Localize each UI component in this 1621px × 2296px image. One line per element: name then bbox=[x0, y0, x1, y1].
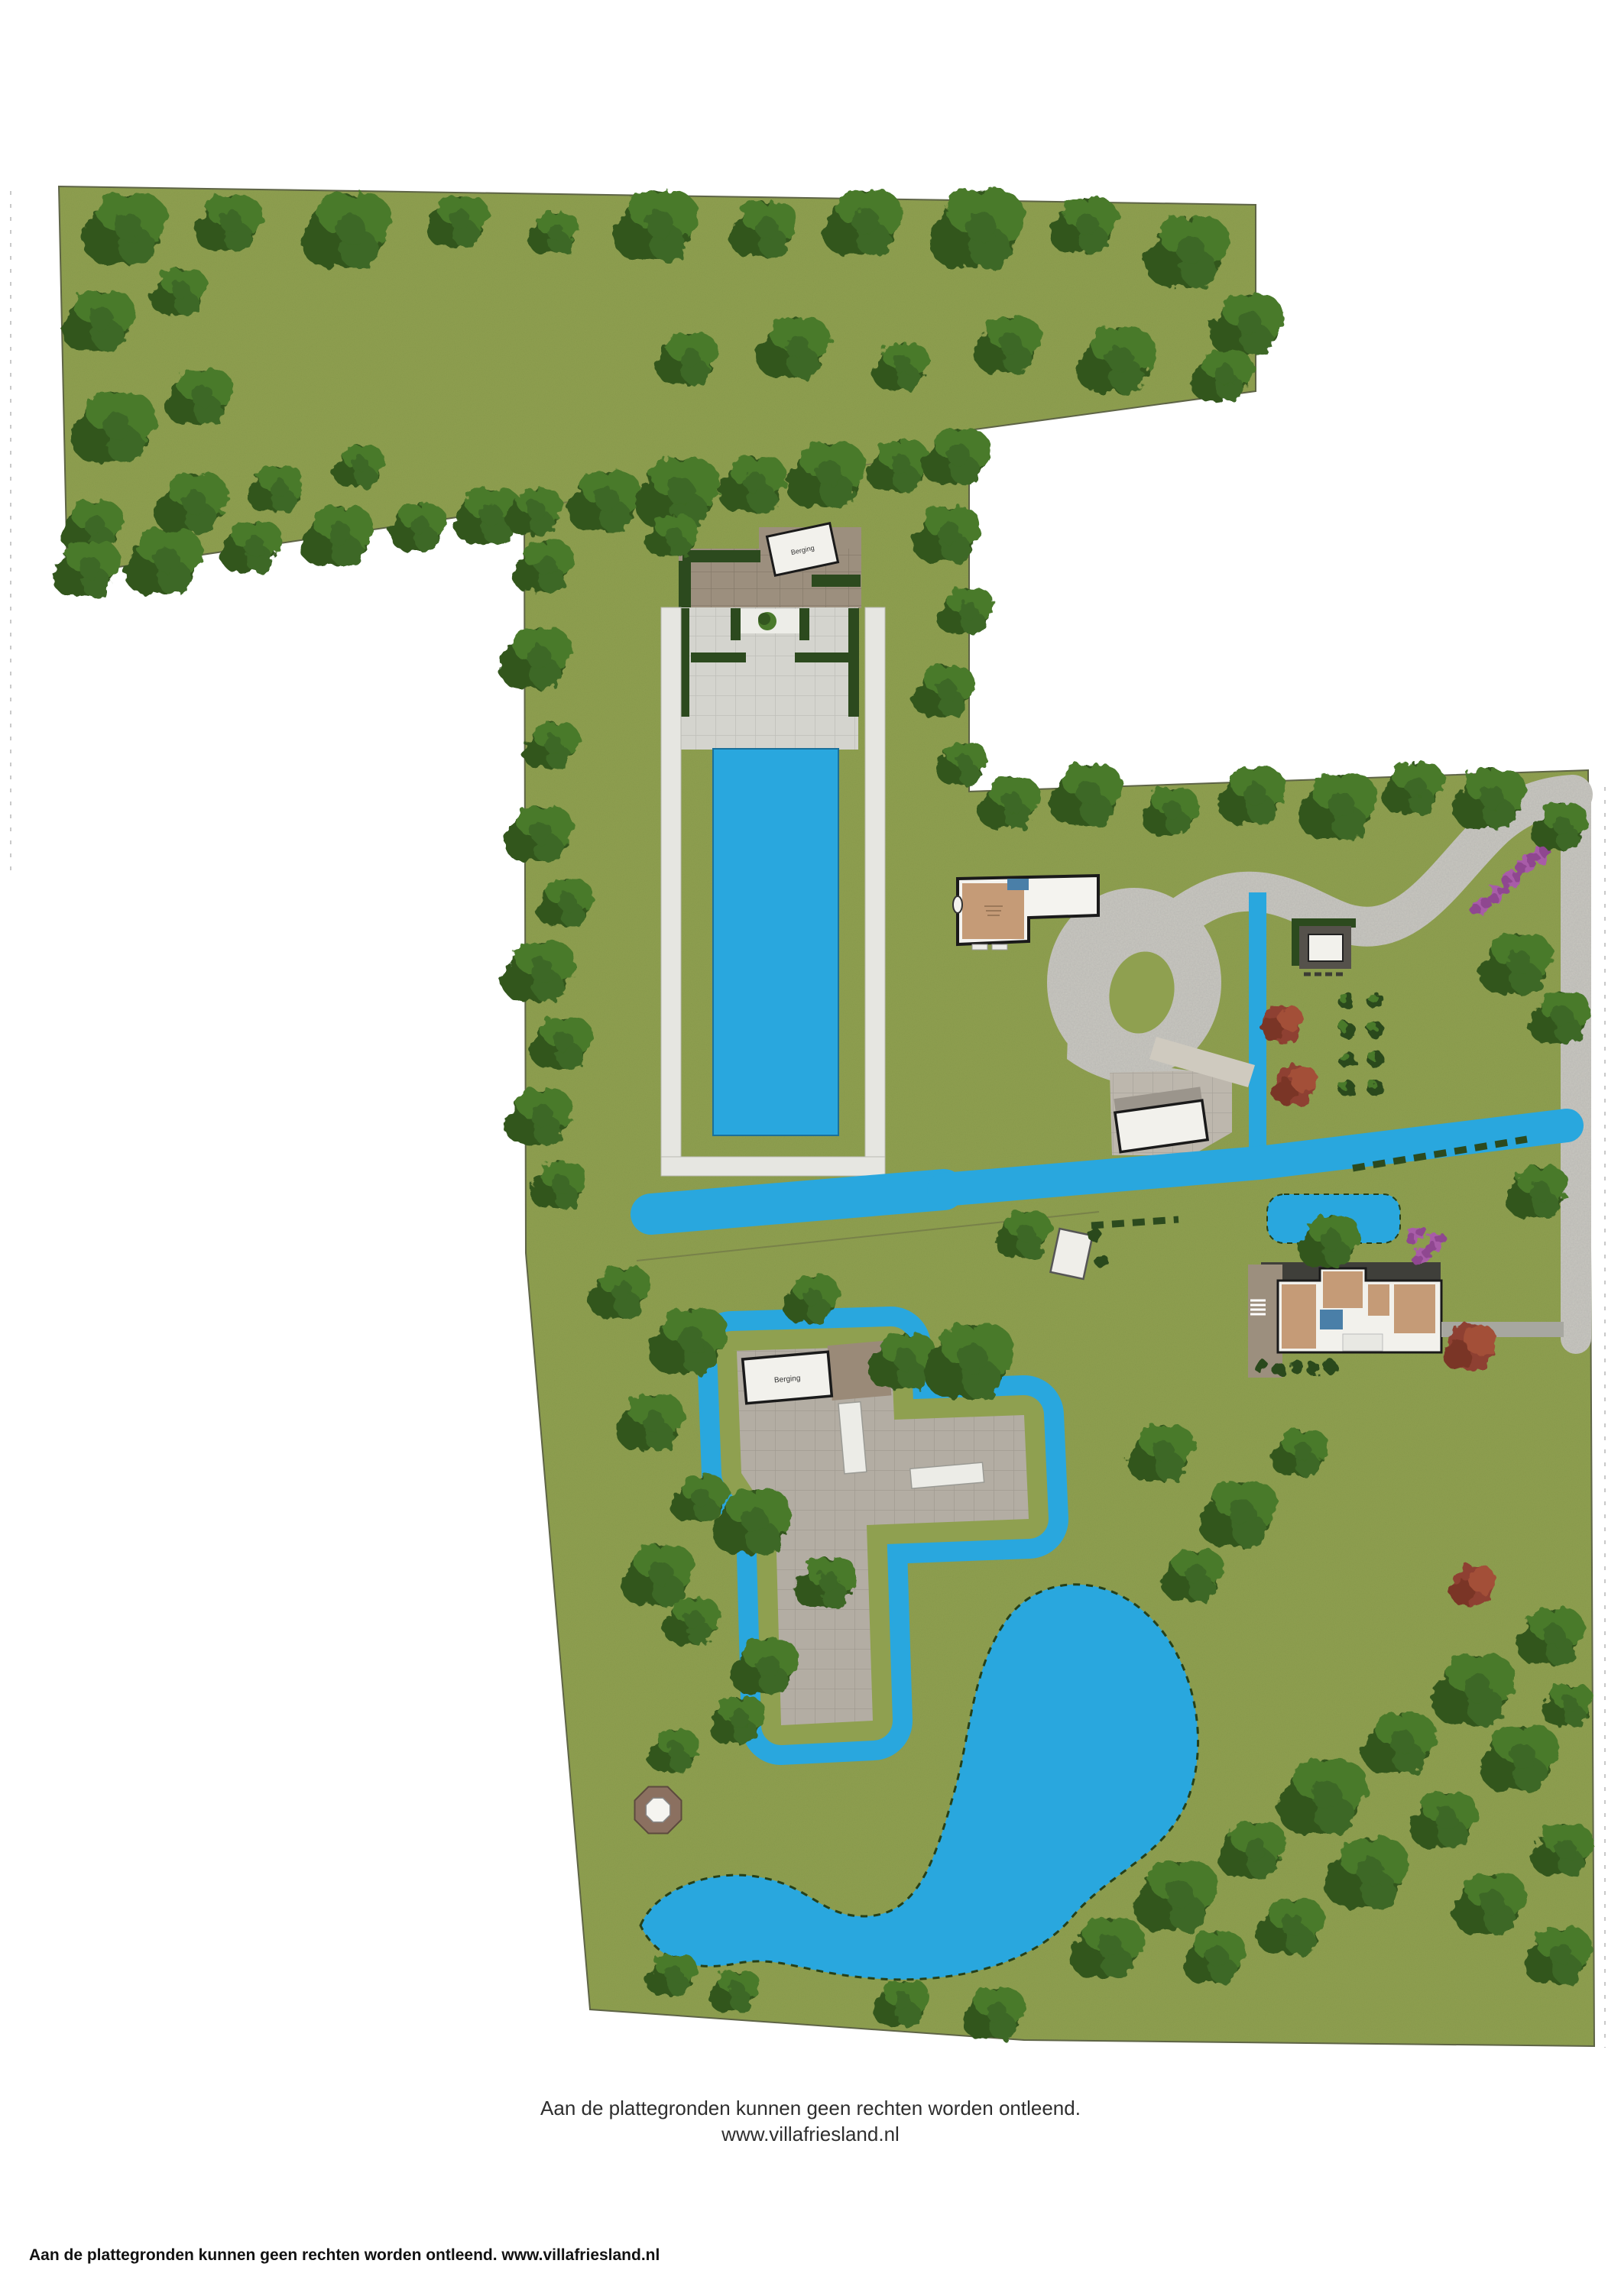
path-shed bbox=[1292, 918, 1356, 974]
site-plan-canvas: Berging bbox=[0, 0, 1621, 2296]
octagon-center bbox=[646, 1798, 669, 1822]
pool-bottom-path bbox=[661, 1157, 885, 1176]
farmhouse-room bbox=[1394, 1284, 1435, 1333]
hedge bbox=[731, 608, 741, 640]
veg bbox=[1367, 1051, 1384, 1067]
footer-line1: Aan de plattegronden kunnen geen rechten… bbox=[0, 2095, 1621, 2121]
veg bbox=[1367, 993, 1384, 1009]
shrub bbox=[1272, 1362, 1285, 1376]
shrub bbox=[1254, 1359, 1268, 1373]
corner-disclaimer: Aan de plattegronden kunnen geen rechten… bbox=[29, 2246, 660, 2265]
hedge bbox=[799, 608, 809, 640]
farmhouse-room bbox=[1368, 1284, 1389, 1316]
lap-pool bbox=[713, 749, 838, 1135]
path-shed-walls bbox=[1308, 934, 1343, 961]
hedge bbox=[682, 550, 760, 562]
hedge bbox=[691, 653, 746, 662]
farmhouse-bathroom bbox=[1320, 1310, 1343, 1329]
shrub bbox=[1324, 1361, 1338, 1375]
garage-step bbox=[972, 944, 987, 950]
footer-line2: www.villafriesland.nl bbox=[0, 2121, 1621, 2147]
entrance-building-area bbox=[1110, 1070, 1232, 1155]
veg bbox=[1338, 993, 1355, 1009]
farmhouse-room bbox=[1282, 1284, 1316, 1349]
veg bbox=[1367, 1022, 1384, 1038]
shrub bbox=[1094, 1254, 1108, 1268]
garage-counter bbox=[1007, 879, 1029, 890]
hedge bbox=[679, 561, 691, 610]
octagon-structure bbox=[635, 1787, 682, 1834]
shrub bbox=[1307, 1362, 1321, 1376]
veg bbox=[1338, 1051, 1355, 1067]
veg bbox=[1338, 1080, 1355, 1096]
veg bbox=[1367, 1080, 1384, 1096]
shrub bbox=[1088, 1228, 1101, 1242]
garage-bay bbox=[953, 896, 962, 913]
footer-disclaimer: Aan de plattegronden kunnen geen rechten… bbox=[0, 2095, 1621, 2147]
hedge bbox=[848, 608, 859, 717]
garage-step bbox=[992, 944, 1007, 950]
tree bbox=[53, 541, 121, 597]
farmhouse-veranda bbox=[1343, 1334, 1383, 1351]
veg bbox=[1338, 1022, 1355, 1038]
site-plan: Berging bbox=[0, 0, 1621, 2292]
farmhouse-room bbox=[1323, 1271, 1363, 1308]
shrub bbox=[1289, 1359, 1303, 1373]
hedge bbox=[1292, 918, 1299, 966]
hedge bbox=[795, 653, 850, 662]
terrace-tree bbox=[758, 613, 770, 625]
pool-side-path-west bbox=[661, 607, 681, 1176]
pool-side-path-east bbox=[865, 607, 885, 1176]
hedge bbox=[812, 575, 861, 587]
canal-horizontal-west bbox=[651, 1190, 944, 1214]
